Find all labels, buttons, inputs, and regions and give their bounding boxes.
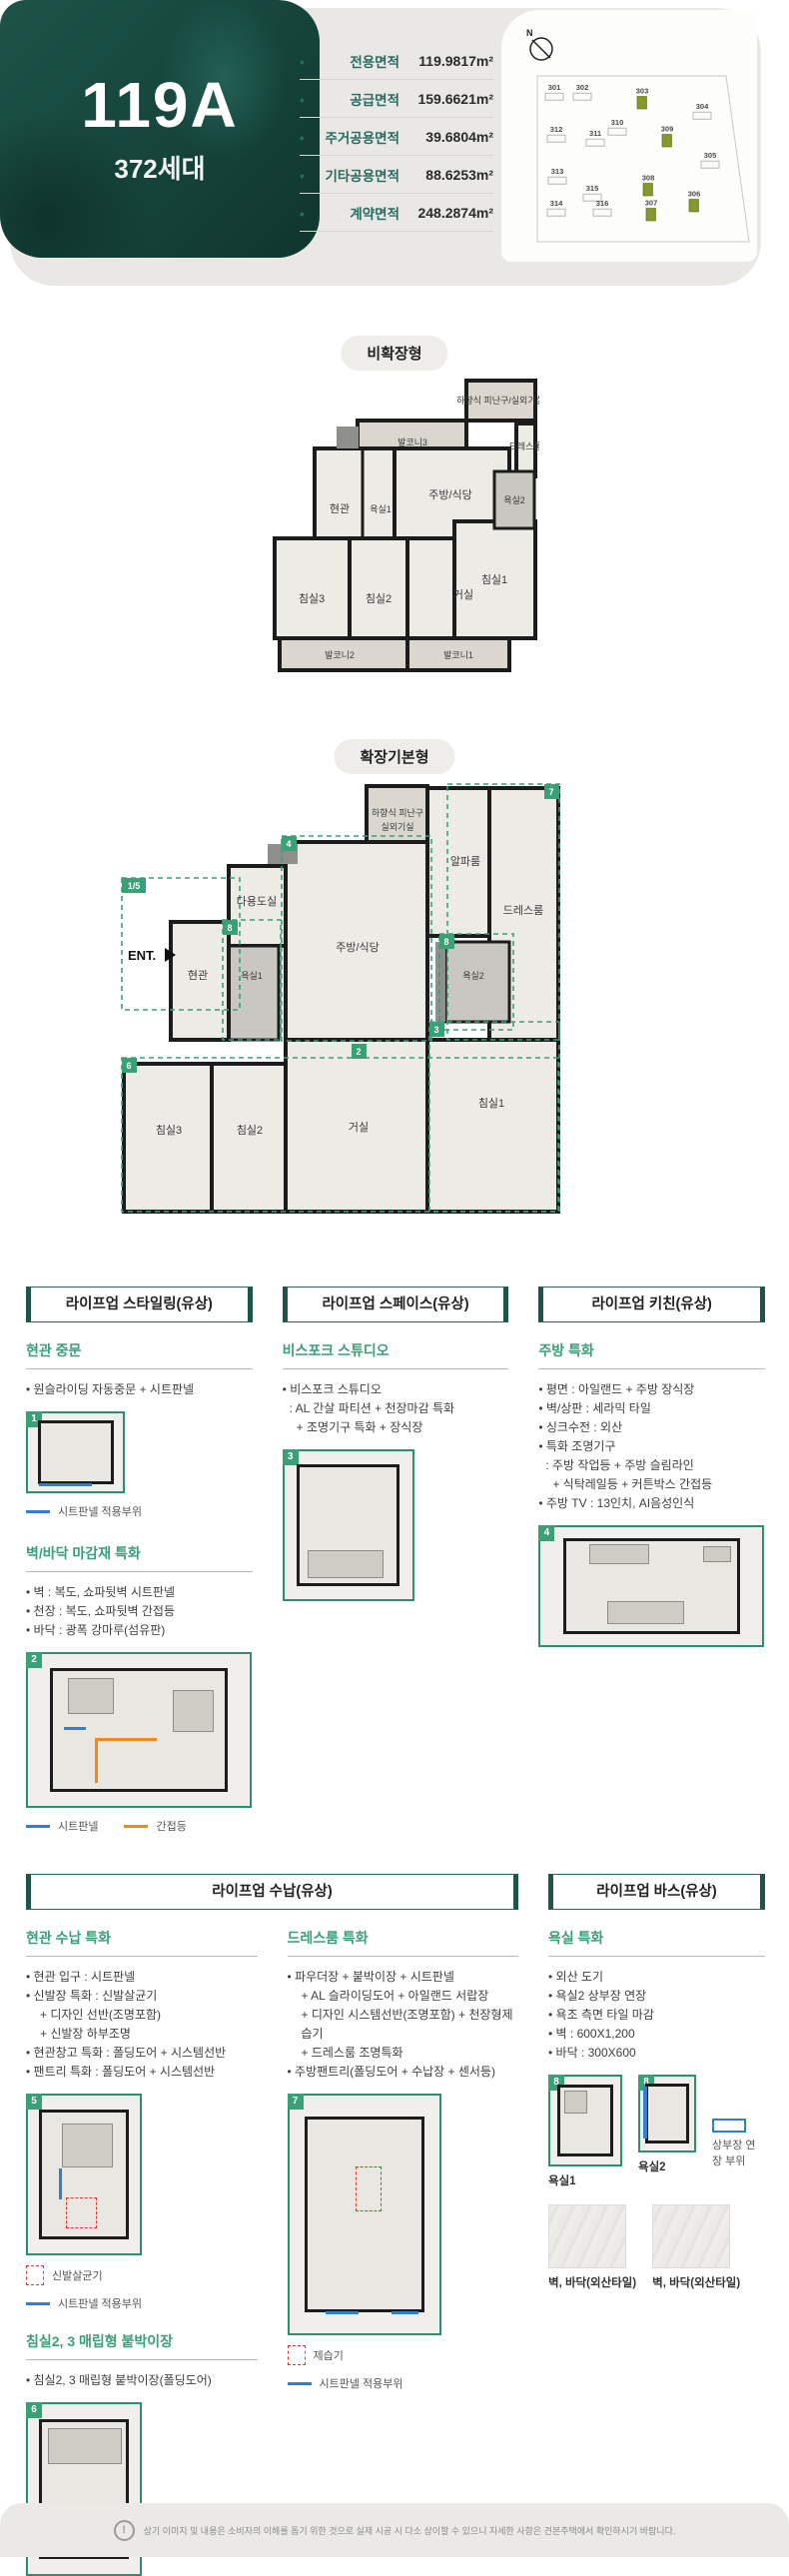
zone-tag: 8 bbox=[227, 923, 232, 933]
feature-row-1: 라이프업 스타일링(유상) 현관 중문 원슬라이딩 자동중문 + 시트판넬 1 … bbox=[26, 1287, 765, 1834]
map-building-316: 316 bbox=[593, 200, 612, 217]
legend-upper-cabinet-label: 상부장 연장 부위 bbox=[712, 2137, 765, 2168]
sheet-panel-accent bbox=[326, 2311, 359, 2314]
bath-thumbnails: 8 욕실1 8 욕실2 상부장 연장 부위 bbox=[548, 2075, 765, 2188]
bath2-block: 8 욕실2 bbox=[638, 2075, 696, 2174]
map-building-314: 314 bbox=[547, 200, 566, 217]
floor-plan-non-expanded: 하향식 피난구/실외기실 발코니3 드레스룸 현관 욕실1 주방/식당 욕실2 … bbox=[195, 377, 539, 676]
area-row: 전용면적 119.9817m² bbox=[300, 42, 493, 80]
red-dashed-box-icon bbox=[26, 2265, 44, 2285]
bullet: 침실2, 3 매립형 붙박이장(폴딩도어) bbox=[26, 2371, 258, 2390]
zone-tag: 8 bbox=[443, 937, 448, 947]
thumb-tag: 2 bbox=[26, 1652, 42, 1668]
feature-plan-thumbnail-2: 2 bbox=[26, 1652, 252, 1808]
legend-label: 상부장 연장 부위 bbox=[712, 2137, 765, 2168]
divider bbox=[26, 2359, 258, 2360]
room-label: 욕실2 bbox=[503, 495, 525, 505]
room-label: 거실 bbox=[453, 588, 473, 601]
room-label: 알파룸 bbox=[450, 854, 480, 868]
bullet-cont: + 신발장 하부조명 bbox=[26, 2025, 258, 2044]
group-heading: 비스포크 스튜디오 bbox=[283, 1340, 509, 1360]
thumb-tag: 7 bbox=[288, 2094, 304, 2110]
map-building-307: 307 bbox=[645, 199, 658, 221]
bullet: 비스포크 스튜디오 bbox=[283, 1380, 509, 1399]
zone-tag: 1/5 bbox=[128, 881, 141, 891]
bullet: 싱크수전 : 외산 bbox=[538, 1418, 765, 1437]
feature-plan-thumbnail-7: 7 bbox=[288, 2094, 441, 2335]
area-value: 39.6804m² bbox=[399, 129, 493, 145]
bullet: 천장 : 복도, 쇼파뒷벽 간접등 bbox=[26, 1602, 253, 1621]
bullet: 벽/상판 : 세라믹 타일 bbox=[538, 1399, 765, 1418]
area-value: 248.2874m² bbox=[399, 205, 493, 221]
unit-type-title: 119A bbox=[81, 72, 238, 139]
room-label: 발코니2 bbox=[325, 650, 355, 660]
bath2-caption: 욕실2 bbox=[638, 2158, 696, 2174]
bullet: 바닥 : 300X600 bbox=[548, 2044, 765, 2063]
group-heading: 현관 수납 특화 bbox=[26, 1928, 258, 1948]
section-space: 라이프업 스페이스(유상) 비스포크 스튜디오 비스포크 스튜디오 : AL 간… bbox=[283, 1287, 509, 1834]
thumb-block bbox=[589, 1544, 649, 1565]
bullet: 주방팬트리(폴딩도어 + 수납장 + 센서등) bbox=[288, 2063, 519, 2082]
group-heading: 침실2, 3 매립형 붙박이장 bbox=[26, 2331, 258, 2351]
map-building-306: 306 bbox=[688, 190, 701, 212]
blue-line-icon bbox=[26, 1510, 50, 1513]
bullet: 원슬라이딩 자동중문 + 시트판넬 bbox=[26, 1380, 253, 1399]
area-value: 88.6253m² bbox=[399, 167, 493, 183]
tile-swatch-image bbox=[652, 2204, 730, 2268]
upper-cabinet-accent bbox=[643, 2087, 647, 2139]
storage-right: 드레스룸 특화 파우더장 + 붙박이장 + 시트판넬 + AL 슬라이딩도어 +… bbox=[288, 1910, 519, 2576]
sheet-panel-accent bbox=[392, 2311, 418, 2314]
tile-swatch-block: 벽, 바닥(외산타일) bbox=[548, 2204, 636, 2290]
tile-caption: 벽, 바닥(외산타일) bbox=[652, 2274, 740, 2290]
section-styling: 라이프업 스타일링(유상) 현관 중문 원슬라이딩 자동중문 + 시트판넬 1 … bbox=[26, 1287, 253, 1834]
group-heading: 주방 특화 bbox=[538, 1340, 765, 1360]
entrance-label: ENT. bbox=[128, 948, 156, 963]
area-value: 119.9817m² bbox=[399, 53, 493, 69]
thumb-block bbox=[62, 2124, 113, 2166]
divider bbox=[283, 1368, 509, 1369]
section-title: 라이프업 수납(유상) bbox=[26, 1874, 518, 1910]
legend-dehumidifier: 제습기 bbox=[288, 2345, 519, 2365]
room-label: 하향식 피난구 bbox=[372, 807, 423, 818]
room-label: 현관 bbox=[330, 502, 350, 515]
bullet: 현관 입구 : 시트판넬 bbox=[26, 1968, 258, 1987]
thumb-block bbox=[173, 1690, 215, 1732]
sheet-panel-accent bbox=[39, 1483, 91, 1486]
legend-label: 시트판넬 적용부위 bbox=[320, 2375, 403, 2391]
room-label: 침실2 bbox=[237, 1124, 263, 1137]
area-label: 기타공용면적 bbox=[300, 165, 399, 185]
room-label: 발코니3 bbox=[397, 437, 427, 447]
map-building-305: 305 bbox=[701, 152, 720, 169]
header-section: 119A 372세대 전용면적 119.9817m² 공급면적 159.6621… bbox=[0, 0, 789, 292]
legend-label: 신발살균기 bbox=[52, 2267, 103, 2283]
thumb-tag: 3 bbox=[283, 1449, 299, 1465]
divider bbox=[538, 1368, 765, 1369]
map-building-311: 311 bbox=[586, 130, 605, 147]
room-label: 실외기실 bbox=[381, 821, 413, 832]
thumb-room-shape bbox=[305, 2117, 424, 2311]
divider bbox=[26, 1368, 253, 1369]
indirect-light-accent bbox=[95, 1738, 157, 1741]
feature-plan-thumbnail-bath1: 8 bbox=[548, 2075, 622, 2166]
blue-line-icon bbox=[26, 2302, 50, 2305]
bullet: 특화 조명기구 bbox=[538, 1437, 765, 1456]
map-building-312: 312 bbox=[547, 126, 566, 143]
legend-row: 시트판넬 간접등 bbox=[26, 1808, 253, 1834]
legend-upper-cabinet bbox=[712, 2119, 765, 2133]
map-building-308: 308 bbox=[642, 174, 655, 196]
room-label: 침실3 bbox=[299, 592, 325, 605]
blue-outline-box-icon bbox=[712, 2119, 746, 2133]
thumb-tag: 6 bbox=[26, 2402, 42, 2418]
thumb-block bbox=[607, 1601, 684, 1624]
feature-plan-thumbnail-4: 4 bbox=[538, 1525, 764, 1647]
sheet-panel-accent bbox=[64, 1727, 86, 1730]
room-label: 침실2 bbox=[366, 592, 392, 605]
area-label: 계약면적 bbox=[300, 203, 399, 223]
section-title: 라이프업 키친(유상) bbox=[538, 1287, 765, 1322]
zone-tag: 7 bbox=[548, 787, 553, 797]
area-row: 공급면적 159.6621m² bbox=[300, 80, 493, 118]
room-label: 하향식 피난구/실외기실 bbox=[456, 395, 539, 406]
section-title: 라이프업 스페이스(유상) bbox=[283, 1287, 509, 1322]
feature-row-2: 라이프업 수납(유상) 현관 수납 특화 현관 입구 : 시트판넬 신발장 특화… bbox=[26, 1874, 765, 2576]
room-label: 주방/식당 bbox=[428, 488, 472, 501]
divider bbox=[26, 1956, 258, 1957]
zone-tag: 3 bbox=[433, 1025, 438, 1035]
feature-plan-thumbnail-3: 3 bbox=[283, 1449, 414, 1601]
area-row: 주거공용면적 39.6804m² bbox=[300, 118, 493, 156]
map-building-309: 309 bbox=[661, 125, 674, 147]
bath1-block: 8 욕실1 bbox=[548, 2075, 622, 2188]
unit-households: 372세대 bbox=[114, 149, 205, 186]
bath1-caption: 욕실1 bbox=[548, 2172, 622, 2188]
thumb-block bbox=[703, 1546, 732, 1562]
room-label: 드레스룸 bbox=[503, 904, 543, 917]
room-label: 주방/식당 bbox=[336, 941, 380, 954]
legend-label: 제습기 bbox=[314, 2347, 344, 2363]
map-building-303: 303 bbox=[636, 87, 649, 109]
bullet: 팬트리 특화 : 폴딩도어 + 시스템선반 bbox=[26, 2063, 258, 2082]
bullet-cont: + 식탁레일등 + 커튼박스 간접등 bbox=[538, 1475, 765, 1494]
room-label: 발코니1 bbox=[443, 650, 473, 660]
unit-hero: 119A 372세대 bbox=[0, 0, 320, 258]
section-bath: 라이프업 바스(유상) 욕실 특화 외산 도기 욕실2 상부장 연장 욕조 측면… bbox=[548, 1874, 765, 2576]
bullet-cont: : 주방 작업등 + 주방 슬림라인 bbox=[538, 1456, 765, 1475]
legend-label: 시트판넬 bbox=[58, 1818, 98, 1834]
thumb-tag: 5 bbox=[26, 2094, 42, 2110]
bullet: 바닥 : 광폭 강마루(섬유판) bbox=[26, 1621, 253, 1640]
storage-left: 현관 수납 특화 현관 입구 : 시트판넬 신발장 특화 : 신발살균기 + 디… bbox=[26, 1910, 258, 2576]
zone-tag: 4 bbox=[286, 839, 291, 849]
sheet-panel-accent bbox=[59, 2168, 62, 2200]
divider bbox=[288, 1956, 519, 1957]
room-label: 욕실2 bbox=[462, 971, 484, 981]
room-label: 침실3 bbox=[156, 1124, 182, 1137]
room-label: 침실1 bbox=[481, 573, 507, 586]
bullet: 신발장 특화 : 신발살균기 bbox=[26, 1987, 258, 2006]
bullet: 벽 : 600X1,200 bbox=[548, 2025, 765, 2044]
map-building-313: 313 bbox=[548, 168, 567, 185]
bullet-cont: : AL 간살 파티션 + 천장마감 특화 bbox=[283, 1399, 509, 1418]
area-list: 전용면적 119.9817m² 공급면적 159.6621m² 주거공용면적 3… bbox=[300, 42, 493, 232]
section-title: 라이프업 스타일링(유상) bbox=[26, 1287, 253, 1322]
bullet-cont: + 디자인 시스템선반(조명포함) + 천장형제습기 bbox=[288, 2006, 519, 2044]
group-heading: 드레스룸 특화 bbox=[288, 1928, 519, 1948]
map-building-302: 302 bbox=[573, 84, 592, 101]
zone-tag: 2 bbox=[356, 1047, 361, 1057]
bullet: 주방 TV : 13인치, AI음성인식 bbox=[538, 1494, 765, 1513]
thumb-tag: 4 bbox=[538, 1525, 554, 1541]
indirect-light-accent bbox=[95, 1738, 98, 1784]
plan2-title-pill: 확장기본형 bbox=[334, 739, 454, 774]
site-map-card: N 30130230330431031231130930531330831531… bbox=[501, 10, 757, 262]
legend-sheet-panel: 시트판넬 bbox=[26, 1818, 98, 1834]
bullet-cont: + 디자인 선반(조명포함) bbox=[26, 2006, 258, 2025]
room-label: 침실1 bbox=[478, 1097, 504, 1110]
bullet: 파우더장 + 붙박이장 + 시트판넬 bbox=[288, 1968, 519, 1987]
area-value: 159.6621m² bbox=[399, 91, 493, 107]
map-building-301: 301 bbox=[545, 84, 564, 101]
bullet-cont: + 조명기구 특화 + 장식장 bbox=[283, 1418, 509, 1437]
room-label: 드레스룸 bbox=[508, 441, 539, 451]
blue-line-icon bbox=[26, 1825, 50, 1828]
area-label: 전용면적 bbox=[300, 51, 399, 71]
thumb-block bbox=[68, 1678, 114, 1713]
tile-swatch-block: 벽, 바닥(외산타일) bbox=[652, 2204, 740, 2290]
shoe-sterilizer-accent bbox=[66, 2197, 97, 2227]
blue-line-icon bbox=[288, 2382, 312, 2385]
legend-indirect-light: 간접등 bbox=[124, 1818, 186, 1834]
thumb-block bbox=[48, 2428, 122, 2464]
alert-icon: ! bbox=[114, 2520, 135, 2541]
thumb-room-shape bbox=[38, 1420, 114, 1484]
divider bbox=[26, 1571, 253, 1572]
map-building-310: 310 bbox=[608, 119, 627, 136]
group-heading: 벽/바닥 마감재 특화 bbox=[26, 1543, 253, 1563]
thumb-room-shape bbox=[645, 2084, 688, 2145]
divider bbox=[548, 1956, 765, 1957]
area-label: 공급면적 bbox=[300, 89, 399, 109]
bullet: 외산 도기 bbox=[548, 1968, 765, 1987]
section-title: 라이프업 바스(유상) bbox=[548, 1874, 765, 1910]
group-heading: 욕실 특화 bbox=[548, 1928, 765, 1948]
room-label: 욕실1 bbox=[241, 971, 263, 981]
tile-swatches: 벽, 바닥(외산타일) 벽, 바닥(외산타일) bbox=[548, 2204, 765, 2290]
legend-label: 시트판넬 적용부위 bbox=[58, 1503, 142, 1519]
area-row: 기타공용면적 88.6253m² bbox=[300, 156, 493, 194]
floor-plan1-rooms bbox=[275, 381, 535, 670]
thumb-block bbox=[564, 2091, 587, 2114]
room-label: 거실 bbox=[349, 1121, 369, 1134]
legend-label: 시트판넬 적용부위 bbox=[58, 2295, 142, 2311]
feature-plan-thumbnail-bath2: 8 bbox=[638, 2075, 696, 2152]
area-label: 주거공용면적 bbox=[300, 127, 399, 147]
area-row: 계약면적 248.2874m² bbox=[300, 194, 493, 232]
section-storage: 라이프업 수납(유상) 현관 수납 특화 현관 입구 : 시트판넬 신발장 특화… bbox=[26, 1874, 518, 2576]
bullet: 욕실2 상부장 연장 bbox=[548, 1987, 765, 2006]
section-kitchen: 라이프업 키친(유상) 주방 특화 평면 : 아일랜드 + 주방 장식장 벽/상… bbox=[538, 1287, 765, 1834]
room-label: 욕실1 bbox=[370, 504, 392, 514]
feature-plan-thumbnail-1: 1 bbox=[26, 1411, 125, 1493]
orange-line-icon bbox=[124, 1825, 148, 1828]
floor-plan2-rooms bbox=[124, 786, 558, 1212]
legend-label: 간접등 bbox=[156, 1818, 186, 1834]
legend-sheet-panel: 시트판넬 적용부위 bbox=[26, 1503, 253, 1519]
bath-legend-block: 상부장 연장 부위 bbox=[712, 2109, 765, 2168]
bullet: 욕조 측면 타일 마감 bbox=[548, 2006, 765, 2025]
room-label: 현관 bbox=[188, 969, 208, 982]
legend-shoe-sterilizer: 신발살균기 bbox=[26, 2265, 258, 2285]
bullet: 평면 : 아일랜드 + 주방 장식장 bbox=[538, 1380, 765, 1399]
legend-sheet-panel: 시트판넬 적용부위 bbox=[26, 2295, 258, 2311]
zone-tag: 6 bbox=[126, 1061, 131, 1071]
floor-plan-expanded: 1/5 4 8 8 2 3 6 7 하향식 피난구 실외기실 다용도실 알파룸 … bbox=[118, 774, 562, 1220]
plan1-title-pill: 비확장형 bbox=[341, 336, 447, 371]
legend-sheet-panel: 시트판넬 적용부위 bbox=[288, 2375, 519, 2391]
room-label: 다용도실 bbox=[237, 895, 277, 908]
feature-plan-thumbnail-5: 5 bbox=[26, 2094, 142, 2255]
map-building-304: 304 bbox=[693, 103, 712, 120]
bullet-cont: + 드레스룸 조명특화 bbox=[288, 2044, 519, 2063]
footer-disclaimer-bar: ! 상기 이미지 및 내용은 소비자의 이해를 돕기 위한 것으로 실제 시공 … bbox=[0, 2503, 789, 2557]
dehumidifier-accent bbox=[356, 2166, 382, 2211]
bullet: 현관창고 특화 : 폴딩도어 + 시스템선반 bbox=[26, 2044, 258, 2063]
bullet-cont: + AL 슬라이딩도어 + 아일랜드 서랍장 bbox=[288, 1987, 519, 2006]
thumb-block bbox=[308, 1550, 384, 1579]
site-boundary bbox=[501, 10, 757, 262]
group-heading: 현관 중문 bbox=[26, 1340, 253, 1360]
red-dashed-box-icon bbox=[288, 2345, 306, 2365]
tile-swatch-image bbox=[548, 2204, 626, 2268]
bullet: 벽 : 복도, 쇼파뒷벽 시트판넬 bbox=[26, 1583, 253, 1602]
tile-caption: 벽, 바닥(외산타일) bbox=[548, 2274, 636, 2290]
disclaimer-text: 상기 이미지 및 내용은 소비자의 이해를 돕기 위한 것으로 실제 시공 시 … bbox=[144, 2524, 676, 2537]
